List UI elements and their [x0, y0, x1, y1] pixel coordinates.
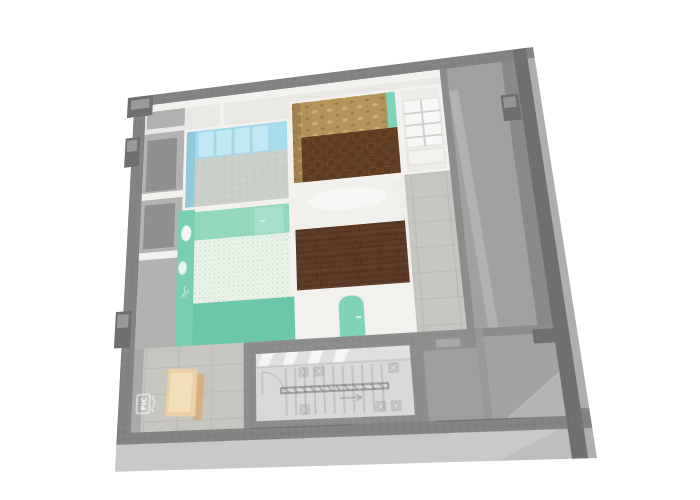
blue-room-carpet-floor	[194, 149, 289, 207]
floorplan-svg: PIC	[107, 47, 597, 472]
gray-rooms	[417, 324, 566, 421]
mint-room	[175, 200, 296, 346]
closet-door-panel	[252, 125, 269, 153]
shelf-room	[397, 84, 450, 175]
service-pocket-2	[143, 203, 175, 250]
service-pocket-1	[145, 138, 177, 193]
corridor-divider-wall	[220, 103, 225, 126]
perspective-plan: PIC	[107, 47, 597, 472]
wallpaper-room	[289, 89, 404, 186]
wood-plank-floor	[295, 220, 409, 290]
mosaic-tile-floor	[193, 232, 291, 303]
closet-door-panel	[198, 131, 214, 158]
bench-top-highlight	[168, 373, 192, 413]
arched-teal-door	[338, 295, 365, 337]
gray-room-block	[532, 328, 555, 343]
blue-room	[182, 118, 291, 211]
stairwell	[244, 332, 425, 428]
mint-room-door	[255, 206, 284, 235]
logo-text: PIC	[139, 397, 147, 411]
balcony-parapet-block-top	[503, 96, 517, 108]
wood-room	[291, 175, 417, 339]
closet-door-panel	[234, 127, 250, 155]
gray-room-door-panel	[436, 338, 461, 348]
closet-door-panel	[216, 129, 232, 156]
pilaster-1-top	[127, 140, 138, 152]
pilaster-2-top	[117, 314, 129, 328]
floorplan-render: PIC	[0, 0, 700, 500]
wooden-bench	[165, 368, 205, 419]
mint-room-front-wall-face	[192, 297, 295, 346]
